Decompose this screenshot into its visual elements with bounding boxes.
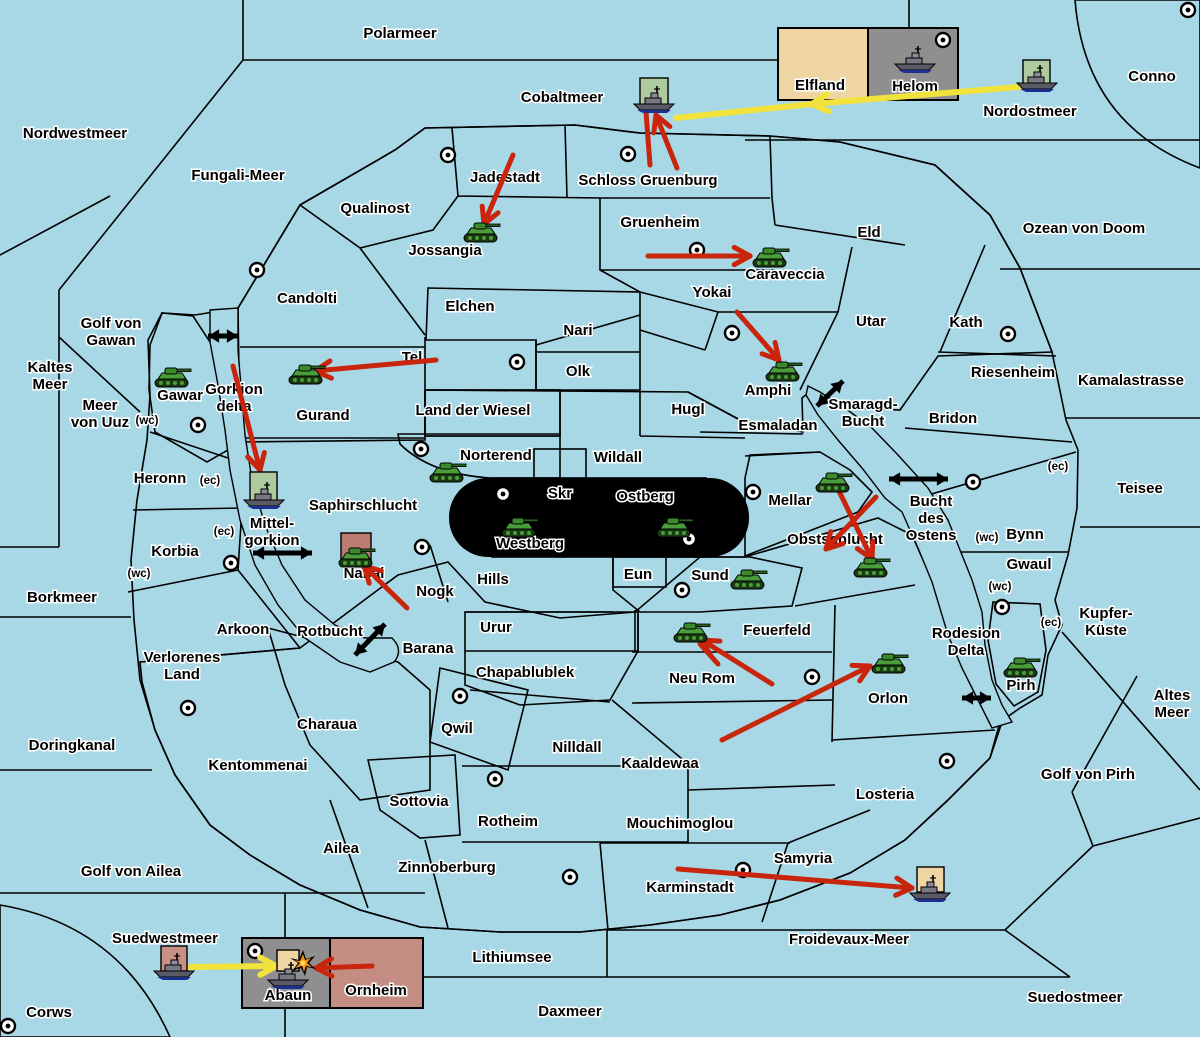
label-land-der-wiesel: Land der Wiesel [416,402,531,419]
army-unit-nabai[interactable] [339,533,375,567]
label-suedwestmeer: Suedwestmeer [112,930,218,947]
label-rotbucht: Rotbucht [297,623,363,640]
label-chapablublek: Chapablublek [476,664,575,681]
supply-center-kath [1001,327,1015,341]
supply-center-kentommenai [181,701,195,715]
label-nordwestmeer: Nordwestmeer [23,125,127,142]
label-nari: Nari [563,322,592,339]
label-sund: Sund [691,567,729,584]
label-gawar: Gawar [157,387,203,404]
coast-marker: (wc) [128,568,151,580]
label-cobaltmeer: Cobaltmeer [521,89,604,106]
label-losteria: Losteria [856,786,915,803]
label-gwaul: Gwaul [1006,556,1051,573]
label-gruenheim: Gruenheim [620,214,699,231]
fleet-unit-cobaltmeer[interactable] [634,78,674,113]
label-schloss-gruenburg: Schloss Gruenburg [578,172,717,189]
label-barana: Barana [403,640,455,657]
label-kentommenai: Kentommenai [208,757,307,774]
label-orlon: Orlon [868,690,908,707]
label-ostberg: Ostberg [616,488,674,505]
label-arkoon: Arkoon [217,621,270,638]
label-bridon: Bridon [929,410,977,427]
coast-marker: (ec) [1041,617,1062,629]
supply-center-candolti [250,263,264,277]
label-golf-von-gawan: Golf vonGawan [81,315,142,349]
label-wildall: Wildall [594,449,642,466]
label-fungali-meer: Fungali-Meer [191,167,285,184]
label-teisee: Teisee [1117,480,1163,497]
coast-marker: (ec) [1048,461,1069,473]
label-ornheim: Ornheim [345,982,407,999]
label-lithiumsee: Lithiumsee [472,949,551,966]
label-corws: Corws [26,1004,72,1021]
supply-center-bridon [966,475,980,489]
supply-center-helom [936,33,950,47]
supply-center-qwil [453,689,467,703]
label-pirh: Pirh [1006,677,1035,694]
label-norterend: Norterend [460,447,532,464]
label-hills: Hills [477,571,509,588]
label-daxmeer: Daxmeer [538,1003,602,1020]
label-kaltes-meer: KaltesMeer [27,359,72,393]
supply-center-sund [675,583,689,597]
label-doringkanal: Doringkanal [29,737,116,754]
label-nilldall: Nilldall [552,739,601,756]
supply-center-schloss-gruenburg [621,147,635,161]
label-rotheim: Rotheim [478,813,538,830]
label-saphirschlucht: Saphirschlucht [309,497,417,514]
label-ozean-von-doom: Ozean von Doom [1023,220,1146,237]
label-nordostmeer: Nordostmeer [983,103,1077,120]
label-golf-von-pirh: Golf von Pirh [1041,766,1135,783]
label-samyria: Samyria [774,850,833,867]
label-caraveccia: Caraveccia [745,266,825,283]
label-nogk: Nogk [416,583,454,600]
label-qualinost: Qualinost [340,200,409,217]
label-kaaldewaa: Kaaldewaa [621,755,699,772]
label-polarmeer: Polarmeer [363,25,437,42]
label-suedostmeer: Suedostmeer [1027,989,1122,1006]
coast-marker: (wc) [976,532,999,544]
supply-center-norterend [414,442,428,456]
label-olk: Olk [566,363,591,380]
label-skr: Skr [548,485,572,502]
supply-center-pirh [995,600,1009,614]
label-mittel-gorkion: Mittel-gorkion [245,515,300,549]
label-altes-meer: AltesMeer [1154,687,1191,721]
label-abaun: Abaun [265,987,312,1004]
label-qwil: Qwil [441,720,473,737]
label-amphi: Amphi [745,382,792,399]
label-feuerfeld: Feuerfeld [743,622,811,639]
supply-center-conno [1181,3,1195,17]
strategy-map: PolarmeerNordwestmeerFungali-MeerCobaltm… [0,0,1200,1037]
label-candolti: Candolti [277,290,337,307]
label-riesenheim: Riesenheim [971,364,1055,381]
label-kamalastrasse: Kamalastrasse [1078,372,1184,389]
label-neu-rom: Neu Rom [669,670,735,687]
label-esmaladan: Esmaladan [738,417,817,434]
game-map-stage: PolarmeerNordwestmeerFungali-MeerCobaltm… [0,0,1200,1037]
label-froidevaux-meer: Froidevaux-Meer [789,931,909,948]
label-korbia: Korbia [151,543,199,560]
label-mellar: Mellar [768,492,812,509]
supply-center-gawar [191,418,205,432]
coast-marker: (wc) [989,581,1012,593]
label-bynn: Bynn [1006,526,1044,543]
label-borkmeer: Borkmeer [27,589,97,606]
label-eld: Eld [857,224,880,241]
label-eun: Eun [624,566,652,583]
supply-center-mellar [746,485,760,499]
supply-center-westberg [496,487,510,501]
region-berg-capsule [449,478,749,557]
label-elchen: Elchen [445,298,494,315]
label-golf-von-ailea: Golf von Ailea [81,863,182,880]
supply-center-neu-rom [805,670,819,684]
supply-center-rotheim [488,772,502,786]
supply-center-losteria [940,754,954,768]
supply-center-saphirschlucht [415,540,429,554]
supply-center-corws [1,1019,15,1033]
label-zinnoberburg: Zinnoberburg [398,859,496,876]
supply-center-tel [510,355,524,369]
label-urur: Urur [480,619,512,636]
label-westberg: Westberg [496,535,564,552]
coast-marker: (ec) [214,526,235,538]
label-jossangia: Jossangia [408,242,482,259]
label-gurand: Gurand [296,407,349,424]
label-kath: Kath [949,314,982,331]
label-kupfer-kueste: Kupfer-Küste [1079,605,1132,639]
label-heronn: Heronn [134,470,187,487]
coast-marker: (wc) [136,415,159,427]
supply-center-korbia [224,556,238,570]
label-mouchimoglou: Mouchimoglou [627,815,734,832]
label-charaua: Charaua [297,716,358,733]
label-ailea: Ailea [323,840,360,857]
label-sottovia: Sottovia [389,793,449,810]
label-karminstadt: Karminstadt [646,879,734,896]
label-elfland: Elfland [795,77,845,94]
supply-center-jadestadt [441,148,455,162]
coast-marker: (ec) [200,475,221,487]
label-yokai: Yokai [693,284,732,301]
label-conno: Conno [1128,68,1175,85]
supply-center-yokai [725,326,739,340]
label-hugl: Hugl [671,401,704,418]
supply-center-zinnoberburg [563,870,577,884]
label-utar: Utar [856,313,886,330]
